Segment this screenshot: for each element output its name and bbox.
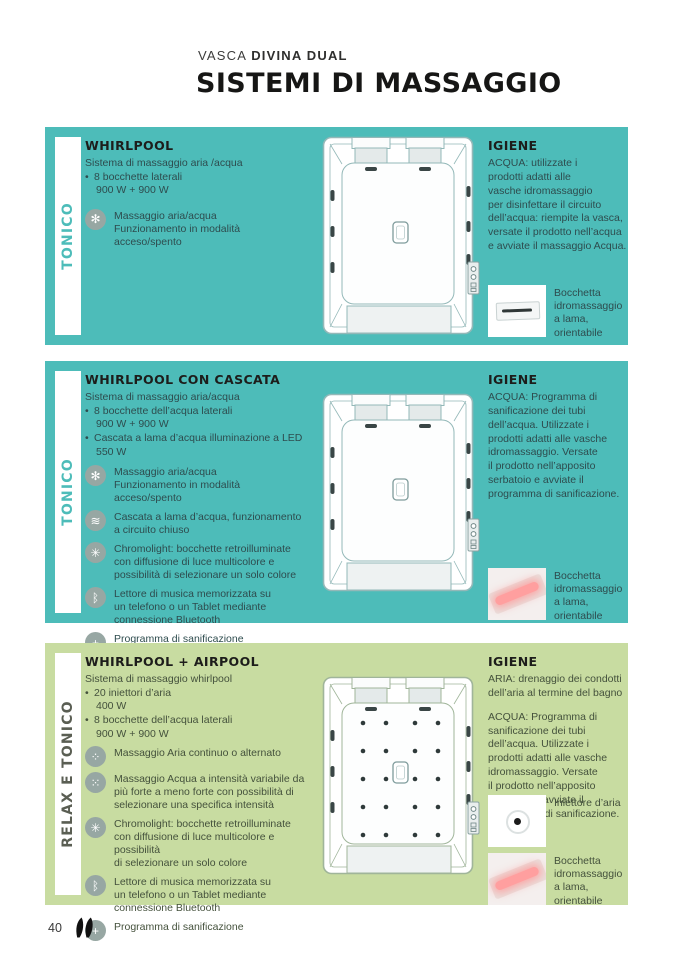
spec-line-1: 8 bocchette dell’acqua laterali: [94, 714, 232, 728]
air-injector-dot-icon: [436, 721, 441, 726]
section-content: WHIRLPOOLSistema di massaggio aria /acqu…: [85, 138, 317, 249]
water-jet-icon: [331, 262, 335, 273]
air-injector-dot-icon: [436, 833, 441, 838]
led-water-jet-nozzle-photo: [488, 853, 546, 905]
spec-line-2: 400 W: [94, 700, 171, 714]
hygiene-column: IGIENEACQUA: Programma di sanificazione …: [488, 372, 640, 512]
water-jet-icon: [467, 478, 471, 489]
air-injector-dot-icon: [361, 833, 366, 838]
tub-apron: [347, 563, 451, 590]
bathtub-top-view-drawing: [322, 393, 480, 598]
section-content: WHIRLPOOL + AIRPOOLSistema di massaggio …: [85, 654, 317, 941]
spec-line-2: 900 W + 900 W: [94, 418, 232, 432]
feature-text: Chromolight: bocchette retroilluminate c…: [114, 817, 291, 870]
photo-caption: Bocchetta idromassaggio a lama, orientab…: [554, 568, 622, 623]
bluetooth-music-icon: ᛒ: [85, 875, 106, 896]
spec-line-1: Cascata a lama d’acqua illuminazione a L…: [94, 432, 302, 446]
air-injector-dot-icon: [413, 777, 418, 782]
headrest-icon: [352, 678, 390, 689]
photo-caption: Bocchetta idromassaggio a lama, orientab…: [554, 853, 622, 908]
feature-item: ⁙Massaggio Acqua a intensità variabile d…: [85, 772, 317, 812]
feature-text: Massaggio Acqua a intensità variabile da…: [114, 772, 304, 812]
spec-item: •8 bocchette dell’acqua laterali900 W + …: [85, 405, 317, 432]
air-injector-dot-icon: [413, 721, 418, 726]
feature-item: ᛒLettore di musica memorizzata su un tel…: [85, 587, 317, 627]
water-jet-icon: [467, 186, 471, 197]
air-injector-dot-icon: [436, 749, 441, 754]
bathtub-top-view-diagram: [322, 393, 480, 598]
hygiene-paragraph: ACQUA: utilizzate i prodotti adatti alle…: [488, 157, 640, 254]
bathtub-top-view-drawing: [322, 136, 480, 341]
headrest-icon: [406, 395, 444, 406]
water-jet-nozzle-photo: [488, 285, 546, 337]
led-water-jet-nozzle-photo: [488, 568, 546, 620]
hygiene-paragraph: ARIA: drenaggio dei condotti dell’aria a…: [488, 673, 640, 701]
air-injector-dot-icon: [361, 749, 366, 754]
spec-lines: 8 bocchette laterali900 W + 900 W: [94, 171, 182, 198]
spec-item: •20 iniettori d’aria400 W: [85, 687, 317, 714]
water-jet-icon: [331, 447, 335, 458]
chromolight-icon: ✳: [85, 542, 106, 563]
spec-line-2: 900 W + 900 W: [94, 728, 232, 742]
air-injector-dot-icon: [384, 721, 389, 726]
air-water-massage-icon: ✻: [85, 465, 106, 486]
water-jet-icon: [419, 707, 431, 711]
bullet-point: •: [85, 171, 94, 198]
section-side-label: TONICO: [60, 458, 76, 526]
water-jet-icon: [331, 519, 335, 530]
water-jet-icon: [331, 483, 335, 494]
air-injector-dot-icon: [436, 777, 441, 782]
headrest-icon: [352, 395, 390, 406]
features-list: ✻Massaggio aria/acqua Funzionamento in m…: [85, 465, 317, 653]
tub-apron: [347, 306, 451, 333]
spec-item: •Cascata a lama d’acqua illuminazione a …: [85, 432, 317, 459]
massage-system-section-1: TONICOWHIRLPOOLSistema di massaggio aria…: [45, 127, 628, 345]
feature-text: Lettore di musica memorizzata su un tele…: [114, 587, 271, 627]
bathtub-top-view-diagram: [322, 136, 480, 341]
photo-caption: Bocchetta idromassaggio a lama, orientab…: [554, 285, 622, 340]
headrest-icon: [406, 138, 444, 149]
section-title: WHIRLPOOL: [85, 138, 317, 153]
section-intro: Sistema di massaggio whirlpool: [85, 673, 317, 687]
air-injector-dot-icon: [361, 805, 366, 810]
feature-item: ≋Cascata a lama d’acqua, funzionamento a…: [85, 510, 317, 537]
water-jet-icon: [331, 766, 335, 777]
spec-lines: 8 bocchette dell’acqua laterali900 W + 9…: [94, 405, 232, 432]
water-jet-icon: [331, 190, 335, 201]
water-jet-icon: [467, 726, 471, 737]
water-massage-icon: ⁙: [85, 772, 106, 793]
feature-text: Programma di sanificazione: [114, 920, 244, 934]
hygiene-photo-row: Bocchetta idromassaggio a lama, orientab…: [488, 853, 622, 908]
hygiene-column: IGIENEARIA: drenaggio dei condotti dell’…: [488, 654, 640, 832]
feature-item: ✻Massaggio aria/acqua Funzionamento in m…: [85, 209, 317, 249]
spec-lines: 8 bocchette dell’acqua laterali900 W + 9…: [94, 714, 232, 741]
headrest-icon: [352, 138, 390, 149]
catalog-page: VASCA DIVINA DUAL SISTEMI DI MASSAGGIO T…: [0, 0, 678, 959]
brand-logo-icon: [74, 917, 96, 943]
water-jet-icon: [365, 707, 377, 711]
air-injector-dot-icon: [384, 805, 389, 810]
cascade-icon: ≋: [85, 510, 106, 531]
page-number: 40: [48, 921, 62, 935]
side-label-strip: TONICO: [55, 137, 81, 335]
water-jet-icon: [331, 730, 335, 741]
spec-line-1: 20 iniettori d’aria: [94, 687, 171, 701]
feature-item: ✳Chromolight: bocchette retroilluminate …: [85, 817, 317, 870]
air-injector-dot-icon: [436, 805, 441, 810]
spec-lines: Cascata a lama d’acqua illuminazione a L…: [94, 432, 302, 459]
collection-name: VASCA DIVINA DUAL: [198, 48, 348, 63]
section-title: WHIRLPOOL + AIRPOOL: [85, 654, 317, 669]
section-side-label: TONICO: [60, 202, 76, 270]
spec-line-2: 900 W + 900 W: [94, 184, 182, 198]
section-side-label: RELAX E TONICO: [60, 700, 76, 848]
air-injector-photo: [488, 795, 546, 847]
hygiene-title: IGIENE: [488, 138, 640, 153]
section-intro: Sistema di massaggio aria /acqua: [85, 157, 317, 171]
side-label-strip: RELAX E TONICO: [55, 653, 81, 895]
feature-text: Massaggio aria/acqua Funzionamento in mo…: [114, 465, 240, 505]
bullet-point: •: [85, 714, 94, 741]
air-injector-dot-icon: [384, 833, 389, 838]
drain-icon: [393, 762, 408, 783]
feature-text: Chromolight: bocchette retroilluminate c…: [114, 542, 296, 582]
water-jet-icon: [467, 761, 471, 772]
tub-apron: [347, 846, 451, 873]
section-title: WHIRLPOOL CON CASCATA: [85, 372, 317, 387]
air-injector-dot-icon: [384, 749, 389, 754]
air-injector-dot-icon: [413, 833, 418, 838]
feature-text: Lettore di musica memorizzata su un tele…: [114, 875, 271, 915]
bullet-point: •: [85, 405, 94, 432]
bullet-point: •: [85, 687, 94, 714]
bullet-point: •: [85, 432, 94, 459]
spec-lines: 20 iniettori d’aria400 W: [94, 687, 171, 714]
side-label-strip: TONICO: [55, 371, 81, 613]
feature-item: ⁘Massaggio Aria continuo o alternato: [85, 746, 317, 767]
photo-caption: Iniettore d’aria: [554, 795, 621, 847]
spec-item: •8 bocchette dell’acqua laterali900 W + …: [85, 714, 317, 741]
feature-item: +Programma di sanificazione: [85, 920, 317, 941]
massage-system-section-3: RELAX E TONICOWHIRLPOOL + AIRPOOLSistema…: [45, 643, 628, 905]
air-massage-icon: ⁘: [85, 746, 106, 767]
air-injector-dot-icon: [361, 721, 366, 726]
hygiene-title: IGIENE: [488, 372, 640, 387]
bathtub-top-view-diagram: [322, 676, 480, 881]
bathtub-top-view-drawing: [322, 676, 480, 881]
water-jet-icon: [467, 443, 471, 454]
water-jet-icon: [365, 167, 377, 171]
hygiene-title: IGIENE: [488, 654, 640, 669]
collection-model: DIVINA DUAL: [251, 48, 348, 63]
headrest-icon: [406, 678, 444, 689]
feature-item: ✳Chromolight: bocchette retroilluminate …: [85, 542, 317, 582]
water-jet-icon: [365, 424, 377, 428]
feature-text: Cascata a lama d’acqua, funzionamento a …: [114, 510, 301, 537]
feature-item: ᛒLettore di musica memorizzata su un tel…: [85, 875, 317, 915]
hygiene-column: IGIENEACQUA: utilizzate i prodotti adatt…: [488, 138, 640, 264]
feature-item: ✻Massaggio aria/acqua Funzionamento in m…: [85, 465, 317, 505]
collection-prefix: VASCA: [198, 48, 251, 63]
feature-text: Massaggio aria/acqua Funzionamento in mo…: [114, 209, 240, 249]
drain-icon: [393, 222, 408, 243]
feature-text: Massaggio Aria continuo o alternato: [114, 746, 281, 760]
section-content: WHIRLPOOL CON CASCATASistema di massaggi…: [85, 372, 317, 653]
hygiene-paragraph: ACQUA: Programma di sanificazione dei tu…: [488, 391, 640, 502]
air-injector-dot-icon: [413, 749, 418, 754]
features-list: ⁘Massaggio Aria continuo o alternato⁙Mas…: [85, 746, 317, 941]
section-intro: Sistema di massaggio aria/acqua: [85, 391, 317, 405]
hygiene-photo-row: Bocchetta idromassaggio a lama, orientab…: [488, 568, 622, 623]
water-jet-icon: [419, 167, 431, 171]
spec-line-1: 8 bocchette dell’acqua laterali: [94, 405, 232, 419]
spec-line-1: 8 bocchette laterali: [94, 171, 182, 185]
massage-system-section-2: TONICOWHIRLPOOL CON CASCATASistema di ma…: [45, 361, 628, 623]
drain-icon: [393, 479, 408, 500]
water-jet-icon: [331, 802, 335, 813]
water-jet-icon: [467, 221, 471, 232]
injector-dot: [514, 818, 521, 825]
air-injector-dot-icon: [361, 777, 366, 782]
air-injector-dot-icon: [413, 805, 418, 810]
air-injector-dot-icon: [384, 777, 389, 782]
chromolight-icon: ✳: [85, 817, 106, 838]
bluetooth-music-icon: ᛒ: [85, 587, 106, 608]
spec-item: •8 bocchette laterali900 W + 900 W: [85, 171, 317, 198]
water-jet-icon: [419, 424, 431, 428]
water-jet-icon: [331, 226, 335, 237]
page-title: SISTEMI DI MASSAGGIO: [196, 68, 562, 99]
hygiene-photo-row: Bocchetta idromassaggio a lama, orientab…: [488, 285, 622, 340]
hygiene-photo-row: Iniettore d’aria: [488, 795, 621, 847]
spec-line-2: 550 W: [94, 446, 302, 460]
air-water-massage-icon: ✻: [85, 209, 106, 230]
features-list: ✻Massaggio aria/acqua Funzionamento in m…: [85, 209, 317, 249]
